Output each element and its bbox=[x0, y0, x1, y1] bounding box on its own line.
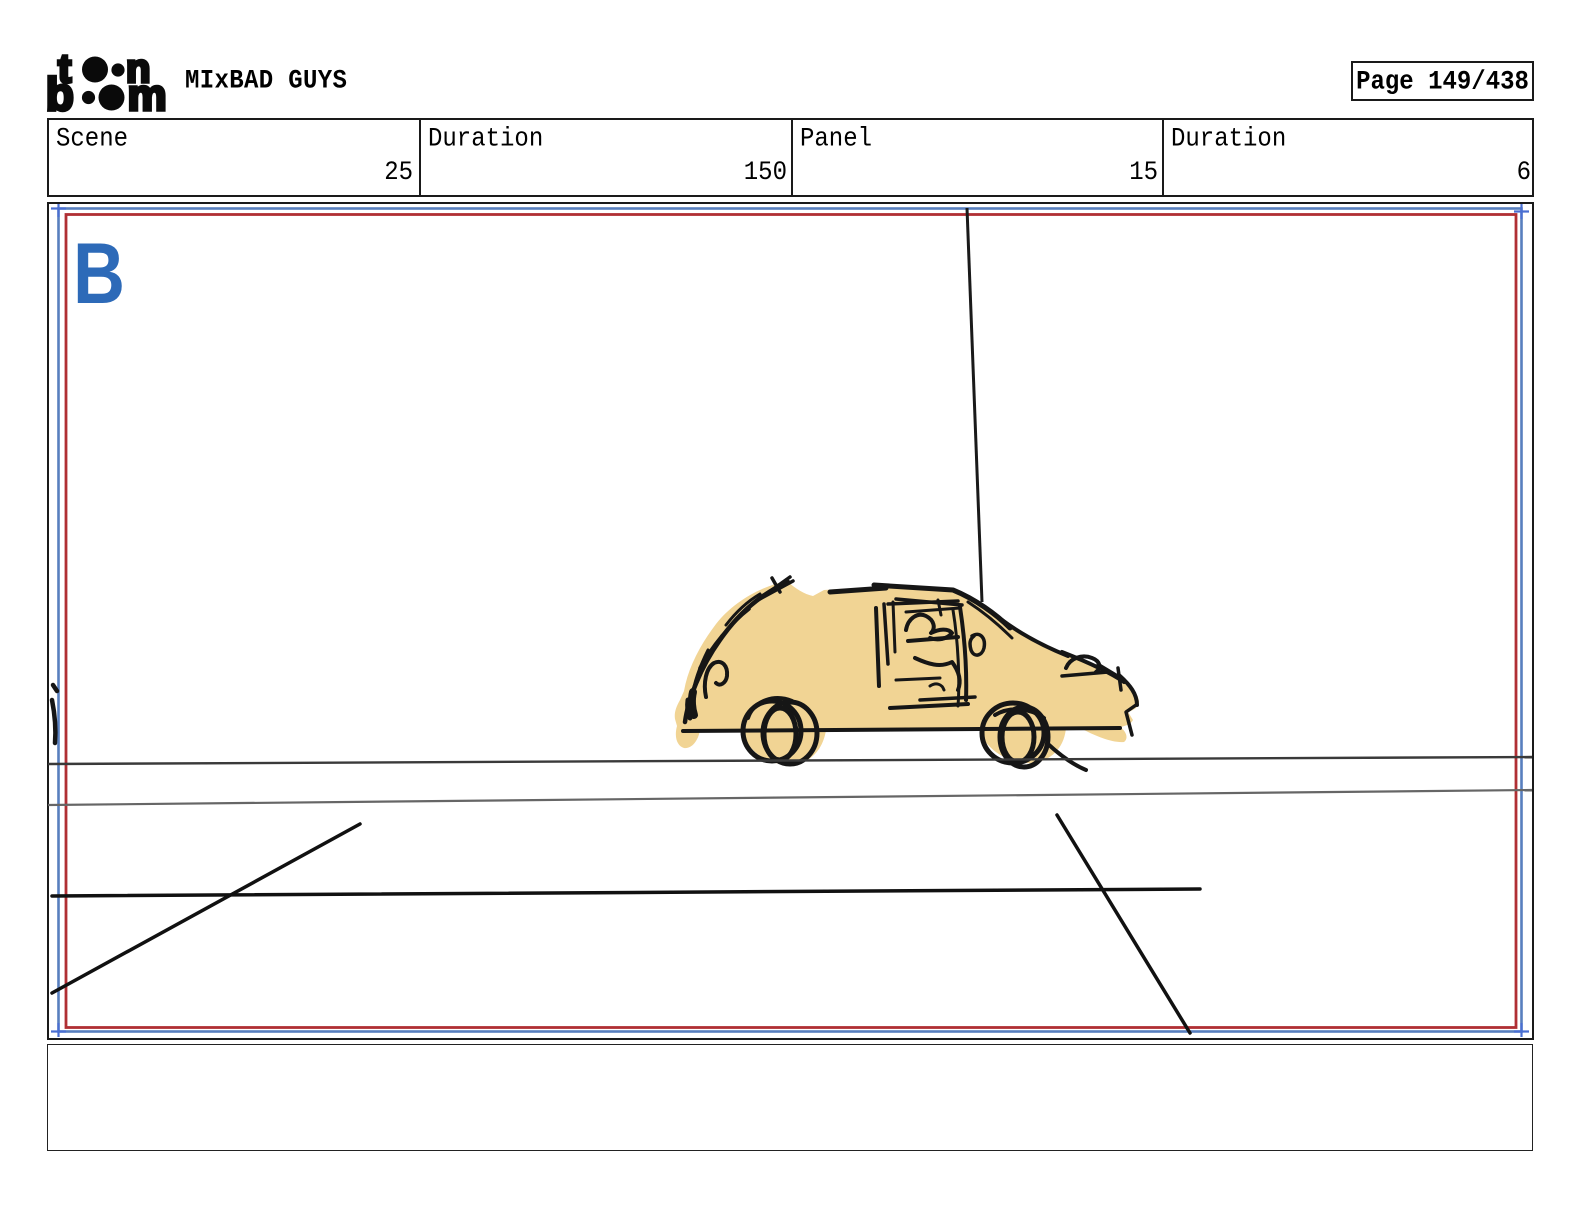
svg-text:B: B bbox=[73, 226, 125, 322]
